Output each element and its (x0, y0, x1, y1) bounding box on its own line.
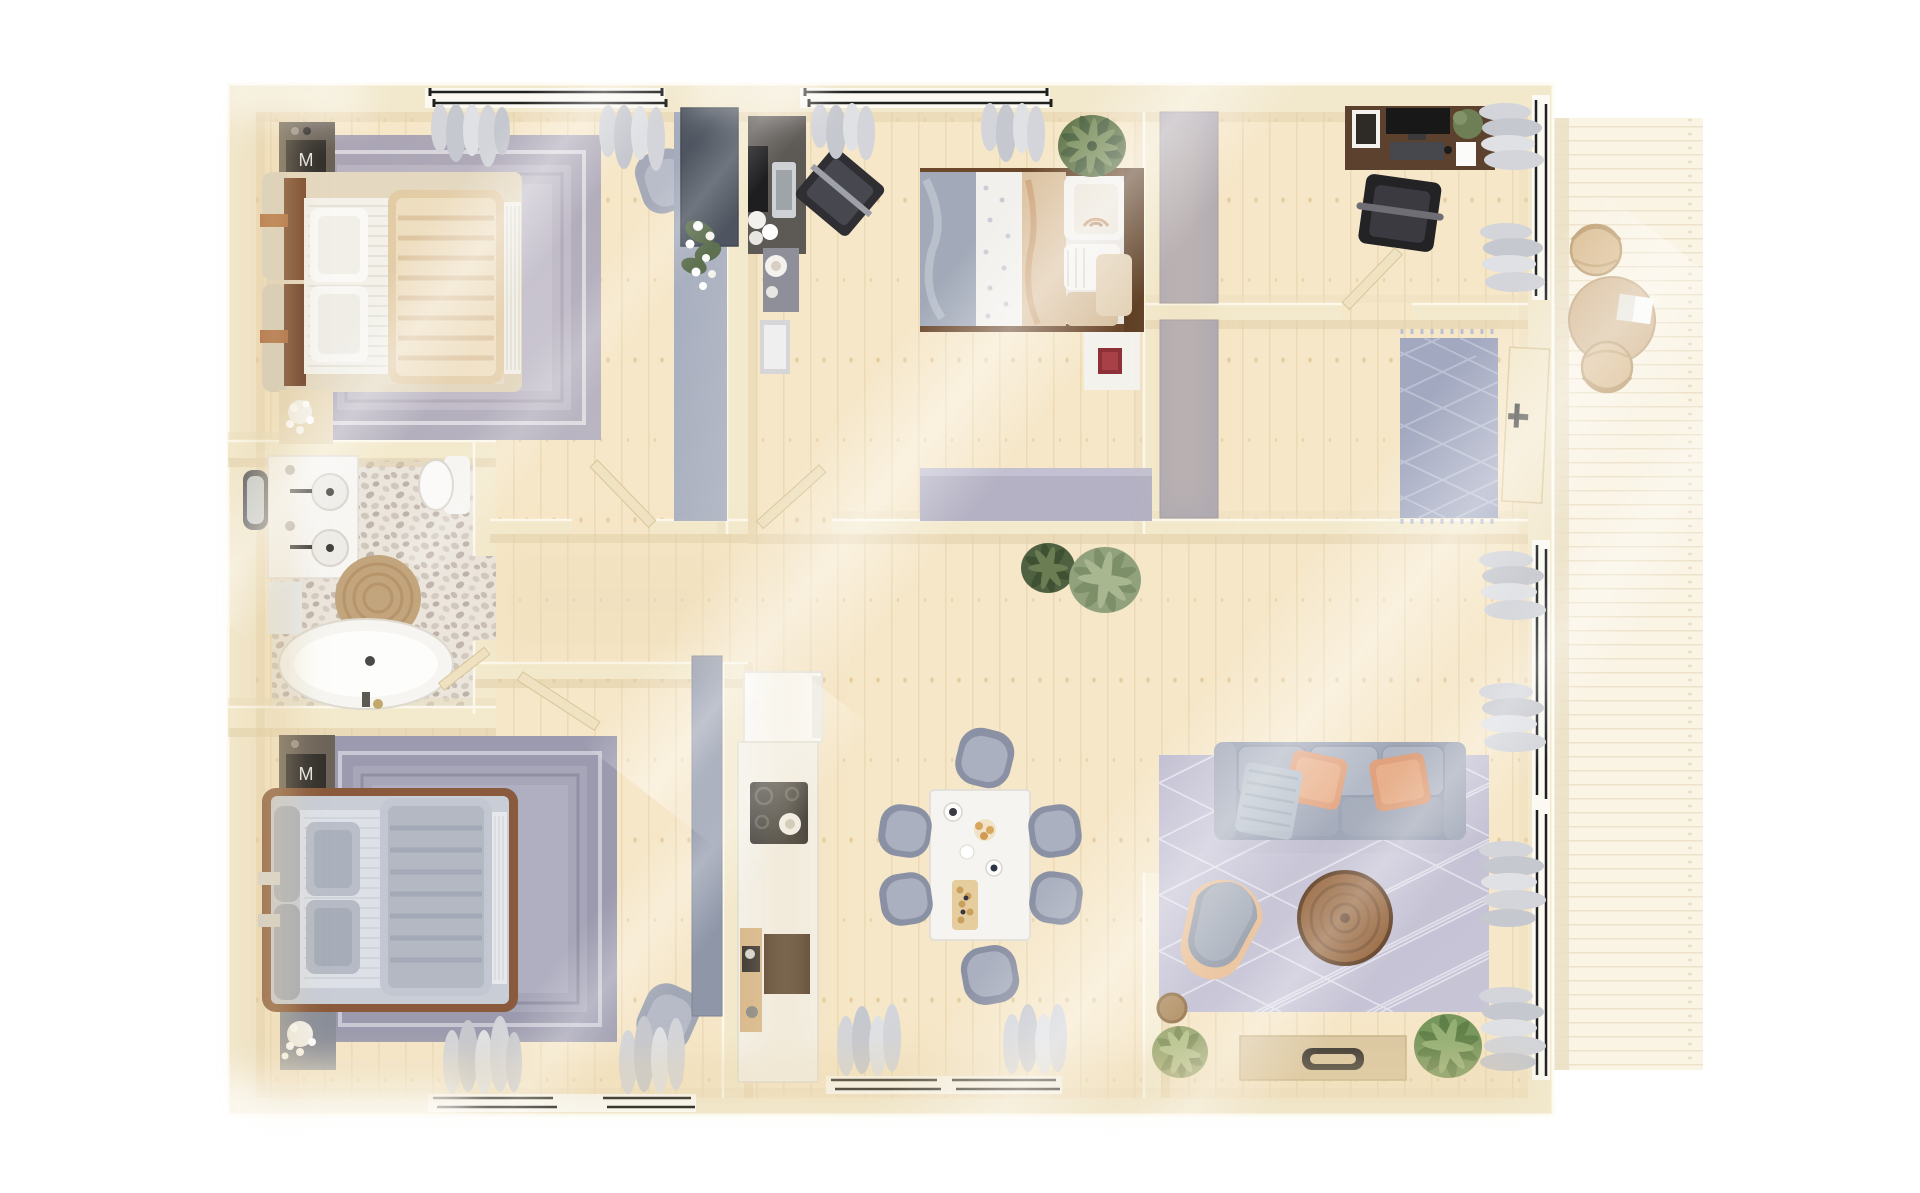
svg-text:M: M (299, 150, 314, 170)
svg-text:M: M (299, 764, 314, 784)
